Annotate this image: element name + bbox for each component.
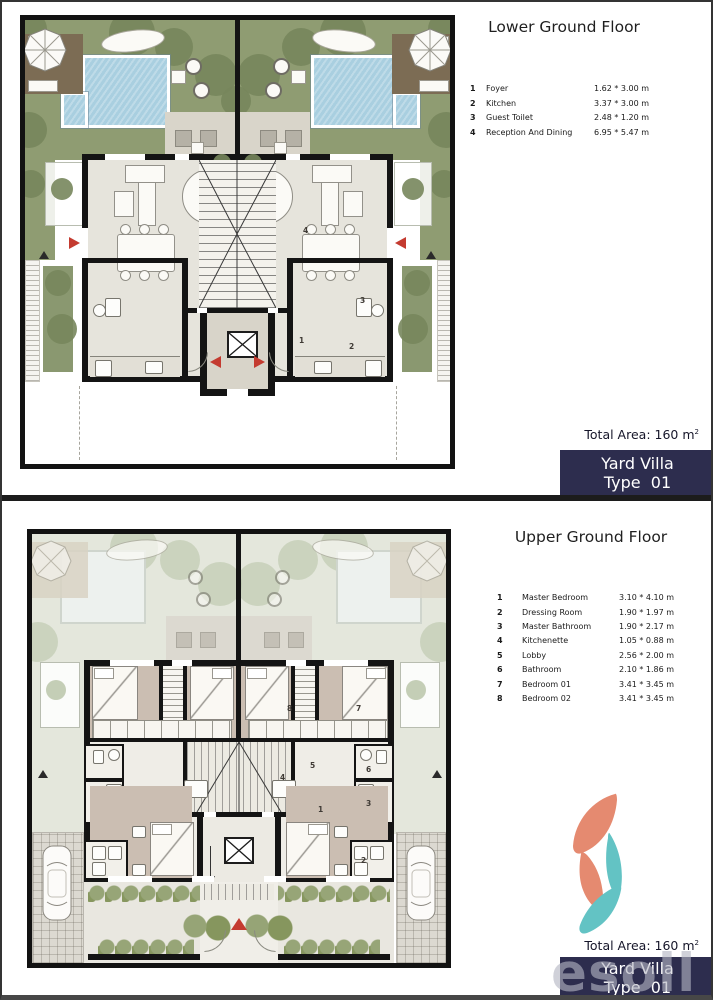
legend-dims: 1.90 * 1.97 m bbox=[619, 609, 707, 617]
side-table bbox=[171, 70, 186, 84]
brochure-page: 4 1 2 3 Lower Ground Floor 1Foyer1.62 * … bbox=[0, 0, 713, 1000]
stove bbox=[95, 360, 112, 377]
kitchen-sink bbox=[145, 361, 163, 374]
dining-chair bbox=[325, 270, 336, 281]
legend-name: Foyer bbox=[486, 85, 594, 93]
armchair bbox=[285, 130, 302, 147]
badge-line1: Yard Villa bbox=[560, 454, 713, 473]
legend-num: 2 bbox=[470, 100, 486, 108]
entry-steps bbox=[204, 884, 274, 900]
car-icon bbox=[405, 844, 437, 922]
staircase-lines bbox=[187, 742, 291, 812]
total-area-sup: 2 bbox=[695, 428, 699, 436]
lower-floor-plan: 4 1 2 3 bbox=[20, 15, 455, 469]
legend-dims: 6.95 * 5.47 m bbox=[594, 129, 702, 137]
car-icon bbox=[41, 844, 73, 922]
dining-chair bbox=[158, 224, 169, 235]
umbrella-icon bbox=[408, 28, 450, 72]
sofa bbox=[138, 182, 156, 226]
legend-num: 7 bbox=[497, 681, 522, 689]
legend-num: 4 bbox=[497, 637, 522, 645]
legend-row: 1Foyer1.62 * 3.00 m bbox=[470, 82, 702, 97]
north-arrow-icon bbox=[39, 251, 49, 259]
entry-arrow-icon bbox=[231, 918, 247, 930]
bath-sink bbox=[360, 749, 372, 761]
legend-row: 6Bathroom2.10 * 1.86 m bbox=[497, 663, 707, 677]
legend-num: 2 bbox=[497, 609, 522, 617]
pillow bbox=[308, 824, 328, 835]
armchair-faded bbox=[200, 632, 216, 648]
panel-title: Lower Ground Floor bbox=[464, 18, 664, 36]
type-badge: Yard Villa Type 01 bbox=[560, 450, 713, 495]
elevator-x-icon bbox=[227, 331, 258, 358]
upper-plan-canvas: 7 8 bbox=[32, 534, 446, 963]
watermark-text: esoll bbox=[551, 943, 696, 1000]
louver-screen bbox=[437, 260, 450, 382]
legend-row: 2Kitchen3.37 * 3.00 m bbox=[470, 97, 702, 112]
toilet-wc bbox=[93, 750, 104, 764]
legend-name: Lobby bbox=[522, 652, 619, 660]
room-marker: 3 bbox=[360, 296, 365, 305]
legend-name: Kitchen bbox=[486, 100, 594, 108]
umbrella-icon bbox=[406, 540, 446, 582]
wall bbox=[200, 313, 207, 389]
room-marker: 8 bbox=[287, 704, 292, 713]
legend-row: 3Guest Toilet2.48 * 1.20 m bbox=[470, 111, 702, 126]
legend-dims: 3.41 * 3.45 m bbox=[619, 681, 707, 689]
party-wall bbox=[235, 20, 240, 156]
door-opening bbox=[387, 228, 393, 258]
dining-chair bbox=[344, 270, 355, 281]
legend-row: 7Bedroom 013.41 * 3.45 m bbox=[497, 677, 707, 691]
room-marker: 4 bbox=[303, 226, 308, 235]
garden-chair-faded bbox=[188, 570, 203, 585]
garden-chair bbox=[265, 82, 282, 99]
sun-lounger bbox=[28, 80, 58, 92]
legend-name: Guest Toilet bbox=[486, 114, 594, 122]
entry-arrow-icon bbox=[69, 237, 80, 249]
elevator-x-icon bbox=[224, 837, 254, 864]
hedge bbox=[268, 884, 390, 902]
wardrobe-unit bbox=[92, 846, 106, 860]
side-table bbox=[274, 142, 287, 154]
hedge bbox=[88, 884, 210, 902]
legend-row: 3Master Bathroom1.90 * 2.17 m bbox=[497, 620, 707, 634]
dining-chair bbox=[120, 224, 131, 235]
garden-side-faded bbox=[32, 739, 84, 834]
legend-name: Bathroom bbox=[522, 666, 619, 674]
staircase-lines bbox=[199, 160, 276, 308]
driveway-line bbox=[396, 386, 397, 460]
nightstand bbox=[334, 826, 348, 838]
room-marker: 2 bbox=[361, 856, 366, 865]
legend-name: Master Bedroom bbox=[522, 594, 619, 602]
legend-name: Dressing Room bbox=[522, 609, 619, 617]
tree bbox=[402, 178, 424, 200]
room-marker: 4 bbox=[280, 773, 285, 782]
tree bbox=[398, 314, 428, 344]
sofa bbox=[312, 165, 352, 183]
badge-line2: Type 01 bbox=[560, 473, 713, 492]
legend-row: 1Master Bedroom3.10 * 4.10 m bbox=[497, 591, 707, 605]
lower-plan-canvas: 4 1 2 3 bbox=[25, 20, 450, 464]
dining-chair bbox=[344, 224, 355, 235]
bathroom bbox=[84, 744, 124, 780]
section-divider bbox=[2, 495, 713, 501]
window bbox=[330, 154, 370, 160]
boundary-wall bbox=[88, 954, 200, 960]
coffee-table bbox=[114, 191, 134, 217]
garden-chair-faded bbox=[275, 570, 290, 585]
wardrobe bbox=[248, 720, 388, 740]
room-legend: 1Master Bedroom3.10 * 4.10 m 2Dressing R… bbox=[497, 591, 707, 706]
room-marker: 1 bbox=[318, 805, 323, 814]
legend-row: 2Dressing Room1.90 * 1.97 m bbox=[497, 605, 707, 619]
legend-dims: 1.90 * 2.17 m bbox=[619, 623, 707, 631]
sofa bbox=[321, 182, 339, 226]
pool-step bbox=[61, 92, 88, 128]
dining-chair bbox=[306, 270, 317, 281]
dining-chair bbox=[139, 270, 150, 281]
tree bbox=[45, 270, 71, 296]
dining-table bbox=[302, 234, 360, 272]
driveway-line bbox=[79, 386, 80, 460]
dining-chair bbox=[139, 224, 150, 235]
armchair-faded bbox=[264, 632, 280, 648]
toilet-sink bbox=[371, 304, 384, 317]
entry-opening bbox=[227, 389, 248, 396]
dining-chair bbox=[158, 270, 169, 281]
legend-name: Master Bathroom bbox=[522, 623, 619, 631]
bathroom bbox=[354, 744, 394, 780]
toilet-sink bbox=[93, 304, 106, 317]
garden-chair bbox=[273, 58, 290, 75]
kitchen-sink bbox=[314, 361, 332, 374]
legend-num: 4 bbox=[470, 129, 486, 137]
bath-sink bbox=[108, 749, 120, 761]
legend-dims: 2.56 * 2.00 m bbox=[619, 652, 707, 660]
garden-chair-faded bbox=[196, 592, 211, 607]
legend-num: 1 bbox=[497, 594, 522, 602]
entry-arrow-icon bbox=[210, 356, 221, 368]
tree bbox=[430, 170, 450, 198]
legend-row: 4Kitchenette1.05 * 0.88 m bbox=[497, 634, 707, 648]
wardrobe bbox=[92, 720, 232, 740]
pool-step bbox=[393, 92, 420, 128]
window bbox=[175, 154, 189, 160]
wall bbox=[293, 258, 387, 263]
side-table bbox=[291, 70, 306, 84]
door-opening bbox=[82, 228, 88, 258]
nightstand bbox=[132, 826, 146, 838]
legend-dims: 2.10 * 1.86 m bbox=[619, 666, 707, 674]
brand-logo bbox=[563, 792, 639, 938]
total-area-label: Total Area: 160 m bbox=[584, 427, 694, 442]
swimming-pool bbox=[311, 55, 399, 128]
coffee-table bbox=[343, 191, 363, 217]
legend-num: 5 bbox=[497, 652, 522, 660]
north-arrow-icon bbox=[38, 770, 48, 778]
garden-chair bbox=[185, 58, 202, 75]
total-area: Total Area: 160 m2 bbox=[462, 427, 699, 442]
legend-dims: 2.48 * 1.20 m bbox=[594, 114, 702, 122]
wardrobe-unit bbox=[108, 846, 122, 860]
dining-chair bbox=[325, 224, 336, 235]
legend-num: 8 bbox=[497, 695, 522, 703]
garden-side-faded bbox=[394, 739, 446, 834]
window bbox=[286, 154, 300, 160]
umbrella-icon bbox=[32, 540, 72, 582]
dining-table bbox=[117, 234, 175, 272]
wardrobe-unit bbox=[370, 846, 384, 860]
swimming-pool bbox=[82, 55, 170, 128]
north-arrow-icon bbox=[432, 770, 442, 778]
north-arrow-icon bbox=[426, 251, 436, 259]
legend-row: 4Reception And Dining6.95 * 5.47 m bbox=[470, 126, 702, 141]
side-table bbox=[191, 142, 204, 154]
stove bbox=[365, 360, 382, 377]
party-wall bbox=[236, 660, 241, 742]
room-legend: 1Foyer1.62 * 3.00 m 2Kitchen3.37 * 3.00 … bbox=[470, 82, 702, 140]
pillow bbox=[366, 668, 386, 679]
party-wall bbox=[236, 534, 241, 660]
legend-row: 5Lobby2.56 * 2.00 m bbox=[497, 649, 707, 663]
room-marker: 6 bbox=[366, 765, 371, 774]
legend-dims: 3.41 * 3.45 m bbox=[619, 695, 707, 703]
panel-title: Upper Ground Floor bbox=[491, 528, 691, 546]
toilet-wc bbox=[376, 750, 387, 764]
legend-name: Kitchenette bbox=[522, 637, 619, 645]
tree bbox=[51, 178, 73, 200]
tree-faded bbox=[46, 680, 66, 700]
nightstand bbox=[132, 864, 146, 876]
legend-name: Bedroom 02 bbox=[522, 695, 619, 703]
legend-num: 3 bbox=[470, 114, 486, 122]
legend-name: Bedroom 01 bbox=[522, 681, 619, 689]
wall bbox=[268, 313, 275, 389]
entry-arrow-icon bbox=[254, 356, 265, 368]
legend-dims: 1.05 * 0.88 m bbox=[619, 637, 707, 645]
pillow bbox=[247, 668, 267, 679]
legend-dims: 1.62 * 3.00 m bbox=[594, 85, 702, 93]
room-marker: 1 bbox=[299, 336, 304, 345]
room-marker: 5 bbox=[310, 761, 315, 770]
nightstand bbox=[334, 864, 348, 876]
entry-arrow-icon bbox=[395, 237, 406, 249]
sofa bbox=[125, 165, 165, 183]
wall bbox=[88, 258, 182, 263]
armchair bbox=[175, 130, 192, 147]
tree bbox=[404, 270, 430, 296]
pillow bbox=[212, 668, 232, 679]
pillow bbox=[152, 824, 172, 835]
legend-num: 1 bbox=[470, 85, 486, 93]
room-marker: 2 bbox=[349, 342, 354, 351]
path-arrow-line bbox=[210, 846, 211, 876]
sun-lounger bbox=[419, 80, 449, 92]
armchair-faded bbox=[288, 632, 304, 648]
room-marker: 3 bbox=[366, 799, 371, 808]
legend-dims: 3.37 * 3.00 m bbox=[594, 100, 702, 108]
legend-name: Reception And Dining bbox=[486, 129, 594, 137]
tree-faded bbox=[406, 680, 426, 700]
legend-dims: 3.10 * 4.10 m bbox=[619, 594, 707, 602]
legend-row: 8Bedroom 023.41 * 3.45 m bbox=[497, 692, 707, 706]
umbrella-icon bbox=[25, 28, 67, 72]
toilet-wc bbox=[105, 298, 121, 317]
legend-num: 3 bbox=[497, 623, 522, 631]
window bbox=[105, 154, 145, 160]
wardrobe-unit bbox=[92, 862, 106, 876]
upper-floor-plan: 7 8 bbox=[27, 529, 451, 968]
boundary-wall bbox=[278, 954, 390, 960]
garden-chair bbox=[193, 82, 210, 99]
tree bbox=[47, 314, 77, 344]
pillow bbox=[94, 668, 114, 679]
legend-num: 6 bbox=[497, 666, 522, 674]
armchair-faded bbox=[176, 632, 192, 648]
dining-chair bbox=[120, 270, 131, 281]
garden-chair-faded bbox=[267, 592, 282, 607]
room-marker: 7 bbox=[356, 704, 361, 713]
louver-screen bbox=[25, 260, 40, 382]
